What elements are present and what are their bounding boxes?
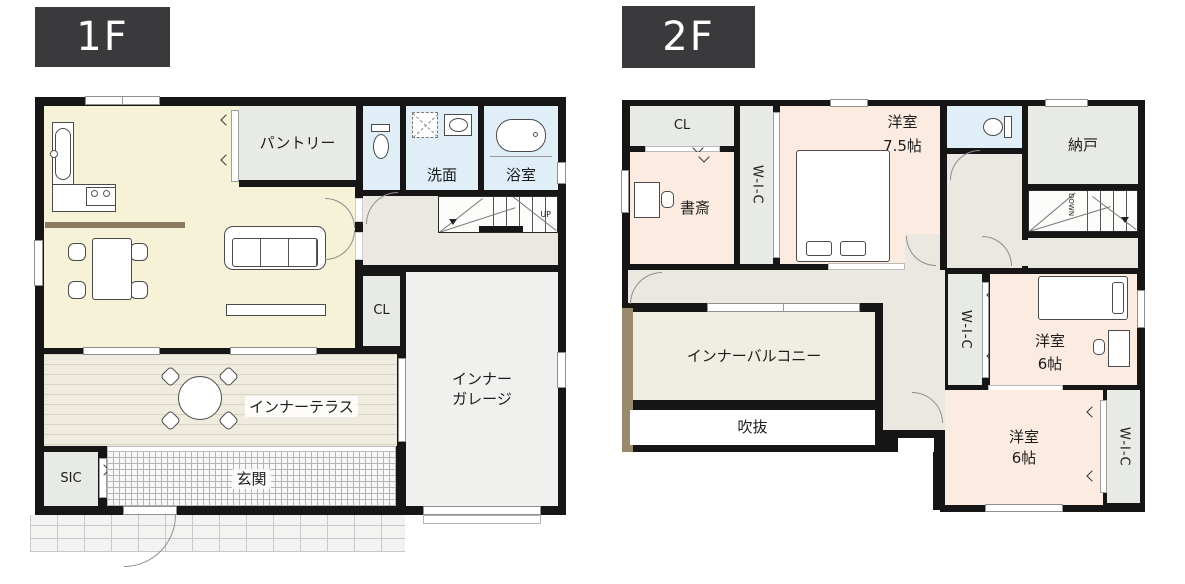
window	[621, 170, 629, 213]
room-void: 吹抜	[630, 410, 875, 445]
hall-2f	[1022, 240, 1028, 266]
chair-icon	[68, 281, 86, 299]
desk-icon	[634, 182, 660, 218]
chair-icon	[1093, 339, 1105, 355]
stove-icon	[86, 187, 116, 206]
stairs-direction-label: UP	[540, 210, 551, 219]
sliding-door-pantry	[231, 110, 239, 182]
faucet-icon	[50, 150, 58, 158]
window-mullion	[783, 303, 784, 312]
pillow-icon	[1112, 282, 1124, 314]
toilet-icon	[373, 134, 389, 159]
room-label: SIC	[60, 470, 81, 488]
pillow-icon	[840, 241, 866, 256]
window	[557, 162, 566, 184]
toilet-icon	[1004, 116, 1012, 138]
stairs-direction-label: DOWN	[1067, 193, 1075, 216]
stair-arrow-icon	[1121, 217, 1129, 223]
desk-icon	[1108, 330, 1130, 367]
burner-icon	[103, 190, 110, 197]
room-label: W-I-C	[748, 165, 766, 205]
room-closet-1f: CL	[363, 276, 400, 346]
approach-tiles	[30, 515, 405, 552]
garage-door-slab	[423, 515, 541, 524]
room-label: インナー	[452, 369, 512, 389]
hall-2f	[1028, 238, 1138, 268]
round-table-icon	[178, 376, 222, 420]
room-label: 洋室	[1000, 330, 1100, 353]
window	[230, 347, 317, 355]
entrance-door-arc	[124, 515, 176, 567]
room-label: 吹抜	[737, 417, 767, 437]
room-wic-3: W-I-C	[1107, 390, 1140, 503]
bathtub-drain-icon	[533, 132, 538, 137]
sofa-seat	[232, 238, 318, 267]
window	[1045, 99, 1088, 107]
stairs-1f: UP	[438, 196, 558, 233]
stair-landing	[479, 226, 523, 232]
window	[398, 358, 406, 442]
exterior-cutout	[898, 438, 934, 452]
room-sic: SIC	[44, 452, 98, 506]
chair-icon	[68, 243, 86, 261]
chair-icon	[661, 191, 674, 208]
toilet-icon	[983, 118, 1003, 136]
room-entrance: 玄関	[107, 452, 396, 506]
room-label: 6帖	[1012, 448, 1037, 468]
sliding-door-bedroom	[828, 263, 905, 270]
toilet-icon	[371, 124, 390, 132]
stair-line	[439, 198, 483, 233]
room-wic-1: W-I-C	[740, 106, 773, 264]
room-label: 洗面	[427, 165, 457, 185]
window	[557, 352, 566, 388]
room-storage: 納戸	[1028, 106, 1138, 184]
room-label: 洋室	[855, 110, 950, 134]
door-opening	[355, 198, 363, 222]
room-label: 洋室 6帖	[1000, 330, 1100, 375]
room-label: 浴室	[506, 165, 536, 185]
room-label: 納戸	[1068, 135, 1098, 155]
chair-icon	[130, 243, 148, 261]
door-opening	[355, 232, 363, 260]
corridor-2f	[628, 270, 883, 303]
sliding-door-wic	[1100, 400, 1107, 493]
room-wic-2: W-I-C	[948, 274, 982, 385]
room-label: CL	[674, 117, 690, 135]
stair-arrow-icon	[449, 219, 457, 225]
chair-icon	[130, 281, 148, 299]
window	[83, 347, 160, 355]
room-label: 玄関	[232, 469, 270, 489]
window	[34, 240, 43, 286]
room-label: 書斎	[680, 198, 710, 218]
room-label: ガレージ	[452, 389, 512, 409]
counter-bar	[45, 222, 185, 228]
window	[985, 504, 1063, 512]
garage-door-opening	[423, 506, 541, 515]
bathtub-ledge	[490, 156, 552, 157]
floor-tag-1f: 1F	[35, 7, 170, 67]
room-bedroom-6b: 洋室 6帖	[945, 390, 1103, 505]
floor-plan-canvas: 1F パントリー 洗面 浴室	[0, 0, 1185, 584]
room-label: インナーテラス	[245, 396, 358, 417]
room-closet-2f: CL	[630, 106, 734, 146]
window-mullion	[122, 96, 123, 105]
floor-tag-2f: 2F	[622, 6, 755, 68]
room-label: W-I-C	[956, 310, 974, 350]
room-label: インナーバルコニー	[687, 346, 822, 366]
sliding-door-wic	[773, 112, 780, 258]
window	[830, 99, 868, 107]
dining-table-icon	[92, 238, 132, 300]
burner-icon	[91, 190, 98, 197]
tv-board-icon	[226, 304, 326, 316]
bathtub-icon	[496, 119, 546, 152]
room-label: 6帖	[1000, 353, 1100, 376]
room-label: W-I-C	[1115, 427, 1133, 467]
room-garage: インナー ガレージ	[406, 272, 558, 506]
room-label: パントリー	[260, 133, 336, 153]
washbasin-icon	[449, 118, 468, 132]
room-label: 洋室	[1009, 427, 1039, 447]
pillow-icon	[806, 241, 832, 256]
room-balcony: インナーバルコニー	[633, 312, 875, 400]
room-label: CL	[373, 302, 389, 320]
stairs-2f: DOWN	[1028, 190, 1138, 232]
window	[1137, 290, 1145, 328]
room-pantry: パントリー	[239, 106, 356, 187]
entrance-door-opening	[123, 506, 177, 515]
